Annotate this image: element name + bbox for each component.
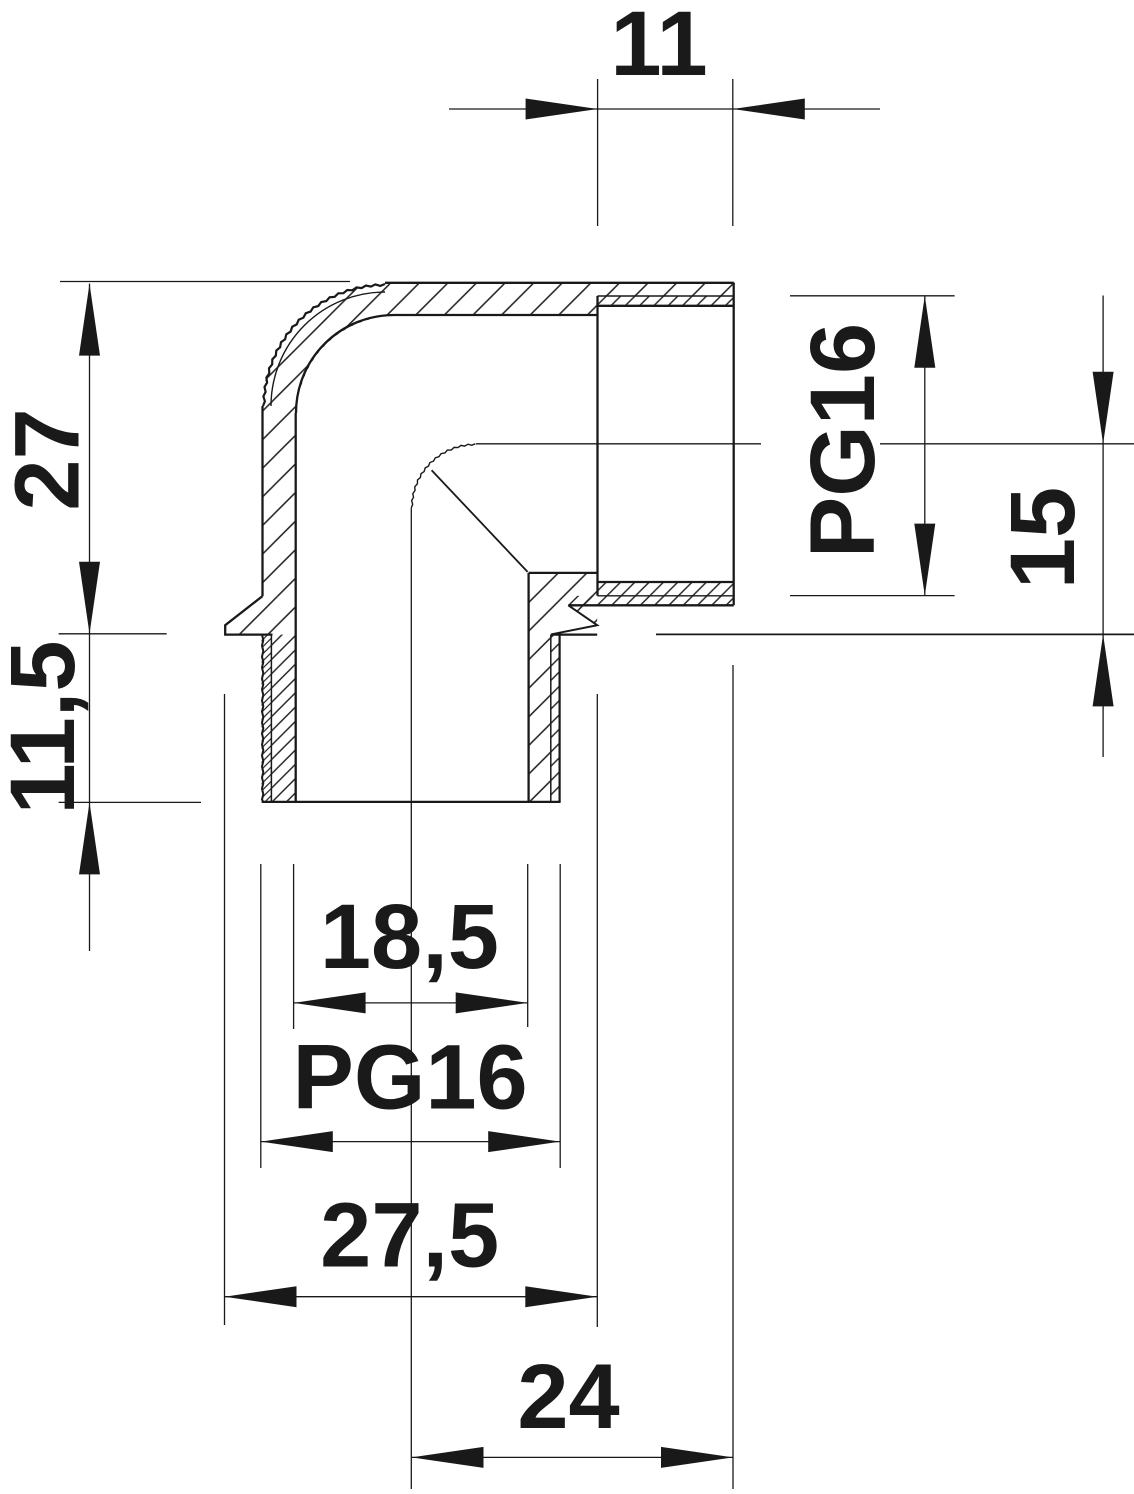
svg-text:PG16: PG16	[292, 1026, 527, 1128]
svg-text:24: 24	[517, 1346, 619, 1448]
svg-text:11,5: 11,5	[0, 641, 94, 815]
svg-text:27: 27	[0, 408, 99, 510]
svg-text:27,5: 27,5	[320, 1185, 499, 1287]
svg-text:11: 11	[610, 0, 707, 95]
svg-text:PG16: PG16	[792, 323, 894, 558]
svg-text:15: 15	[992, 487, 1094, 589]
svg-text:18,5: 18,5	[320, 886, 499, 988]
